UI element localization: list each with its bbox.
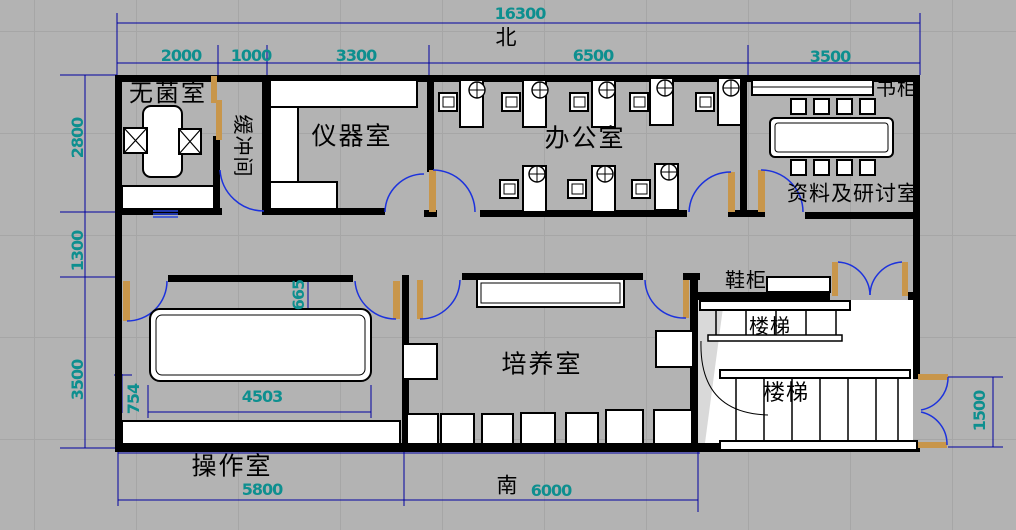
stair-rail [720,370,910,378]
bench [122,186,214,209]
dim-corridor-665: 665 [291,280,307,310]
dim-bottom-5800: 5800 [242,482,283,498]
door-leaf [429,170,436,212]
south-label: 南 [497,476,518,497]
door-arc [420,280,460,319]
shoe-cabinet-box [767,277,830,292]
chair [860,160,875,175]
dim-bottom-6000: 6000 [531,483,572,499]
chair [860,99,875,114]
door-leaf [683,280,689,318]
door-leaf [902,262,908,296]
door-arc [689,172,731,212]
chair [814,99,829,114]
furniture-operation-room [122,309,400,444]
door-leaf [918,442,947,448]
wall-segment [913,75,920,379]
door-arc [921,377,948,410]
room-label-sterile: 无菌室 [129,81,207,105]
dim-top-2000: 2000 [161,48,202,64]
wall-segment [805,212,920,219]
stair-upper-label: 楼梯 [749,316,791,336]
equipment-box [654,410,692,444]
bench [122,421,400,444]
wall-segment [697,292,830,300]
dim-top-1000: 1000 [231,48,272,64]
equipment-box [482,414,513,444]
lab-table [143,106,182,177]
dim-top-6500: 6500 [573,48,614,64]
cad-floorplan-view: 北 南 无菌室 缓冲间 仪器室 办公室 资料及研讨室 培养室 操作室 书柜 鞋柜… [0,0,1016,530]
stair-rail [720,441,917,450]
dim-left-1300: 1300 [70,231,86,272]
furniture-archive-room [752,80,893,175]
door-arc [433,170,475,212]
equipment-box [521,413,555,444]
equipment-box [566,413,598,444]
room-label-archive: 资料及研讨室 [787,184,919,205]
door-leaf [728,172,735,212]
stair-lower-label: 楼梯 [763,383,809,405]
stairs [698,277,917,450]
chair [837,160,852,175]
furniture-sterile-room [122,106,214,209]
room-label-buffer: 缓冲间 [233,115,253,178]
wall-segment [262,75,269,215]
door-arc [921,412,947,445]
wall-segment [480,210,687,217]
room-label-instrument: 仪器室 [311,124,392,149]
chair [791,160,806,175]
door-arc [870,262,902,295]
door-leaf [832,262,838,296]
chair [791,99,806,114]
bench [270,182,337,209]
shoe-cabinet-label: 鞋柜 [725,270,767,290]
meeting-table [770,118,893,157]
door-arc [645,280,686,318]
bookcase-label: 书柜 [876,78,918,98]
dim-top-3300: 3300 [336,48,377,64]
wall-segment [115,75,122,450]
dim-table-4503: 4503 [242,389,283,405]
bench [270,80,417,107]
door-leaf [211,76,217,103]
door-leaf [918,374,948,380]
door-leaf [417,280,423,319]
door-leaf [393,281,400,319]
door-leaf [758,170,765,212]
chair [814,160,829,175]
north-label: 北 [496,28,517,49]
dim-table-754: 754 [126,384,142,414]
door-arc [838,262,870,295]
dim-top-3500: 3500 [810,49,851,65]
work-table [150,309,371,381]
dim-left-2800: 2800 [70,118,86,159]
wall-segment [908,292,920,300]
door-leaf [123,281,130,321]
equipment-box [441,414,474,444]
door-arc [385,174,424,212]
chair [837,99,852,114]
equipment-box [606,410,643,444]
equipment-box [656,331,693,367]
equipment-box [403,344,437,379]
dim-entry-1500: 1500 [972,391,988,432]
stair-rail [700,301,850,310]
dim-left-3500: 3500 [70,360,86,401]
room-label-culture: 培养室 [501,352,582,377]
wall-segment [168,275,353,282]
dim-overall-width: 16300 [495,6,546,22]
room-label-operation: 操作室 [191,454,272,479]
door-leaf [216,100,222,140]
room-label-office: 办公室 [544,126,625,151]
wall-segment [427,75,434,172]
equipment-box [407,414,438,444]
